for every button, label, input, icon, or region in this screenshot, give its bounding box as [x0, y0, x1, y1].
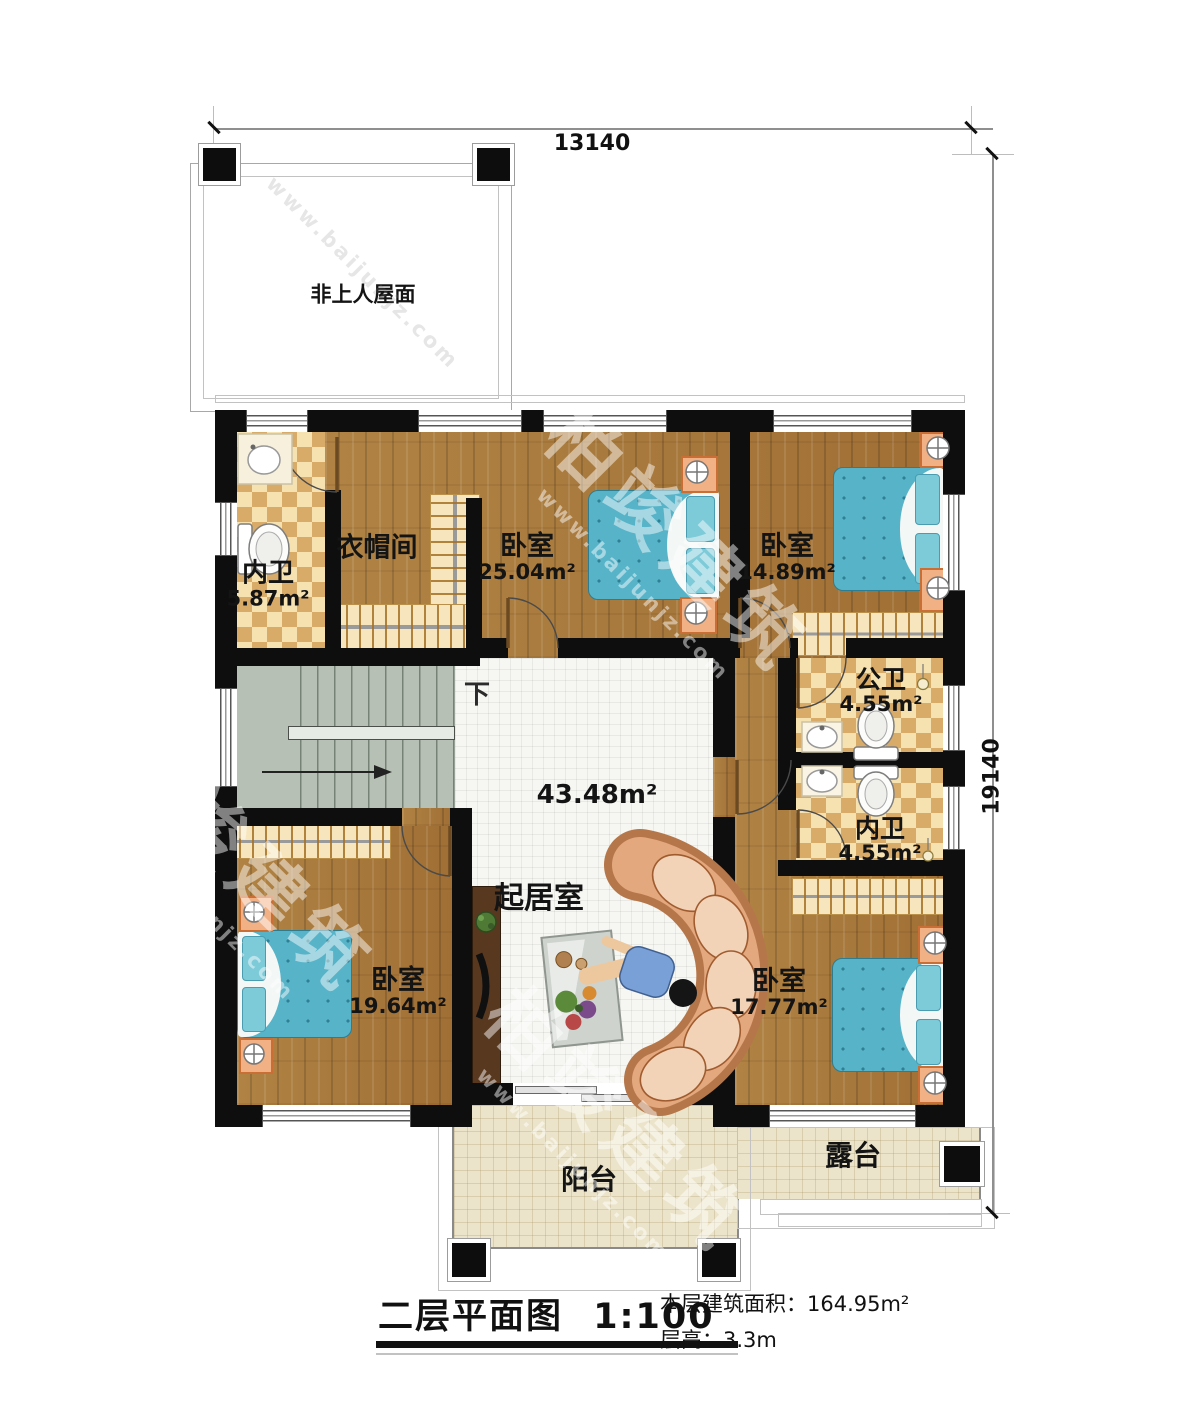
room-label-bath-top: 内卫 5.87m²	[227, 560, 310, 611]
pillow	[916, 1019, 941, 1066]
pillow	[915, 474, 940, 525]
room-name: 卧室	[349, 966, 447, 995]
room-label-bedroom-b: 卧室 14.89m²	[738, 532, 836, 584]
wall	[713, 658, 735, 757]
room-label-terrace: 露台	[825, 1141, 881, 1171]
sliding-panel	[515, 1086, 597, 1094]
room-name: 阳台	[561, 1165, 617, 1195]
wall	[325, 490, 341, 648]
room-label-bedroom-c: 卧室 19.64m²	[349, 966, 447, 1018]
floor-plan: 13140 19140 非上人屋面	[0, 0, 1200, 1426]
column	[203, 148, 236, 181]
room-area: 25.04m²	[478, 561, 576, 584]
room-label-balcony: 阳台	[561, 1165, 617, 1195]
plan-title-text: 二层平面图	[378, 1297, 563, 1337]
nightstand	[681, 456, 718, 493]
room-name: 起居室	[494, 883, 584, 915]
nightstand	[680, 597, 717, 634]
wall	[450, 808, 472, 826]
wall	[790, 638, 798, 658]
stair-handrail	[288, 726, 455, 740]
column	[944, 1146, 980, 1182]
sliding-panel	[581, 1094, 663, 1102]
floor-bath-top	[237, 432, 325, 648]
wardrobe	[334, 604, 481, 650]
pillow	[686, 548, 715, 593]
extension-line	[952, 154, 1014, 155]
room-area: 4.55m²	[839, 842, 922, 865]
column	[477, 148, 510, 181]
nightstand	[239, 1038, 273, 1074]
bed-pillow-zone	[900, 959, 945, 1071]
terrace-step	[778, 1213, 982, 1227]
bed-pillow-zone	[667, 491, 719, 599]
room-name: 衣帽间	[337, 533, 418, 562]
room-area: 43.48m²	[537, 781, 658, 809]
dimension-right-value: 19140	[980, 722, 1005, 832]
wardrobe	[227, 824, 391, 859]
nightstand	[239, 896, 273, 932]
dimension-line-top	[213, 128, 993, 130]
window	[262, 1105, 411, 1127]
pillow	[242, 987, 266, 1031]
floor-notes: 本层建筑面积：164.95m² 层高：3.3m	[660, 1286, 909, 1358]
column	[702, 1243, 736, 1277]
dimension-top-value: 13140	[537, 131, 647, 156]
room-name: 卧室	[478, 532, 576, 561]
dimension-line-right	[992, 154, 994, 1214]
room-label-bedroom-d: 卧室 17.77m²	[730, 967, 828, 1019]
room-area: 17.77m²	[730, 996, 828, 1019]
wall	[558, 638, 730, 658]
room-area: 5.87m²	[227, 588, 310, 611]
window	[773, 410, 912, 432]
wall	[713, 817, 735, 1105]
window	[943, 685, 965, 751]
roof-label: 非上人屋面	[311, 284, 416, 307]
tv-cabinet	[472, 886, 501, 1090]
wall	[215, 648, 480, 666]
window	[215, 502, 237, 556]
room-area: 14.89m²	[738, 561, 836, 584]
room-name: 内卫	[839, 815, 922, 842]
window	[418, 410, 522, 432]
sliding-door	[513, 1083, 665, 1105]
window	[215, 688, 237, 787]
room-label-public-bath: 公卫 4.55m²	[840, 666, 923, 716]
room-name: 卧室	[730, 967, 828, 996]
room-area: 19.64m²	[349, 995, 447, 1018]
door-reveal	[402, 808, 450, 826]
window	[943, 494, 965, 591]
room-label-cloakroom: 衣帽间	[337, 533, 418, 562]
wall	[215, 808, 402, 826]
wall	[730, 638, 740, 658]
living-area-label: 43.48m²	[537, 781, 658, 809]
room-name: 卧室	[738, 532, 836, 561]
bed	[237, 930, 352, 1038]
pillow	[916, 965, 941, 1012]
wall	[778, 752, 965, 768]
floor-area-note: 本层建筑面积：164.95m²	[660, 1286, 909, 1322]
room-name: 内卫	[227, 560, 310, 588]
bed	[588, 490, 720, 600]
window	[769, 1105, 916, 1127]
window	[246, 410, 308, 432]
window	[943, 786, 965, 850]
pillow	[242, 936, 266, 980]
room-area: 4.55m²	[840, 693, 923, 716]
stairs-down-label: 下	[464, 681, 490, 709]
eave-line	[215, 395, 965, 403]
room-name: 露台	[825, 1141, 881, 1171]
bed-pillow-zone	[238, 931, 281, 1037]
column	[452, 1243, 486, 1277]
room-label-bedroom-a: 卧室 25.04m²	[478, 532, 576, 584]
room-name: 公卫	[840, 666, 923, 693]
room-label-inner-bath: 内卫 4.55m²	[839, 815, 922, 865]
wall	[665, 1083, 713, 1105]
bed	[832, 958, 946, 1072]
pillow	[686, 496, 715, 541]
window	[543, 410, 667, 432]
wall	[778, 658, 796, 752]
door-reveal	[713, 757, 735, 817]
wardrobe	[792, 878, 950, 915]
floor-height-note: 层高：3.3m	[660, 1322, 909, 1358]
wall	[452, 826, 472, 1105]
wall	[846, 638, 965, 658]
room-label-living: 起居室	[494, 883, 584, 915]
wall	[778, 768, 796, 810]
extension-line	[948, 1213, 1010, 1214]
